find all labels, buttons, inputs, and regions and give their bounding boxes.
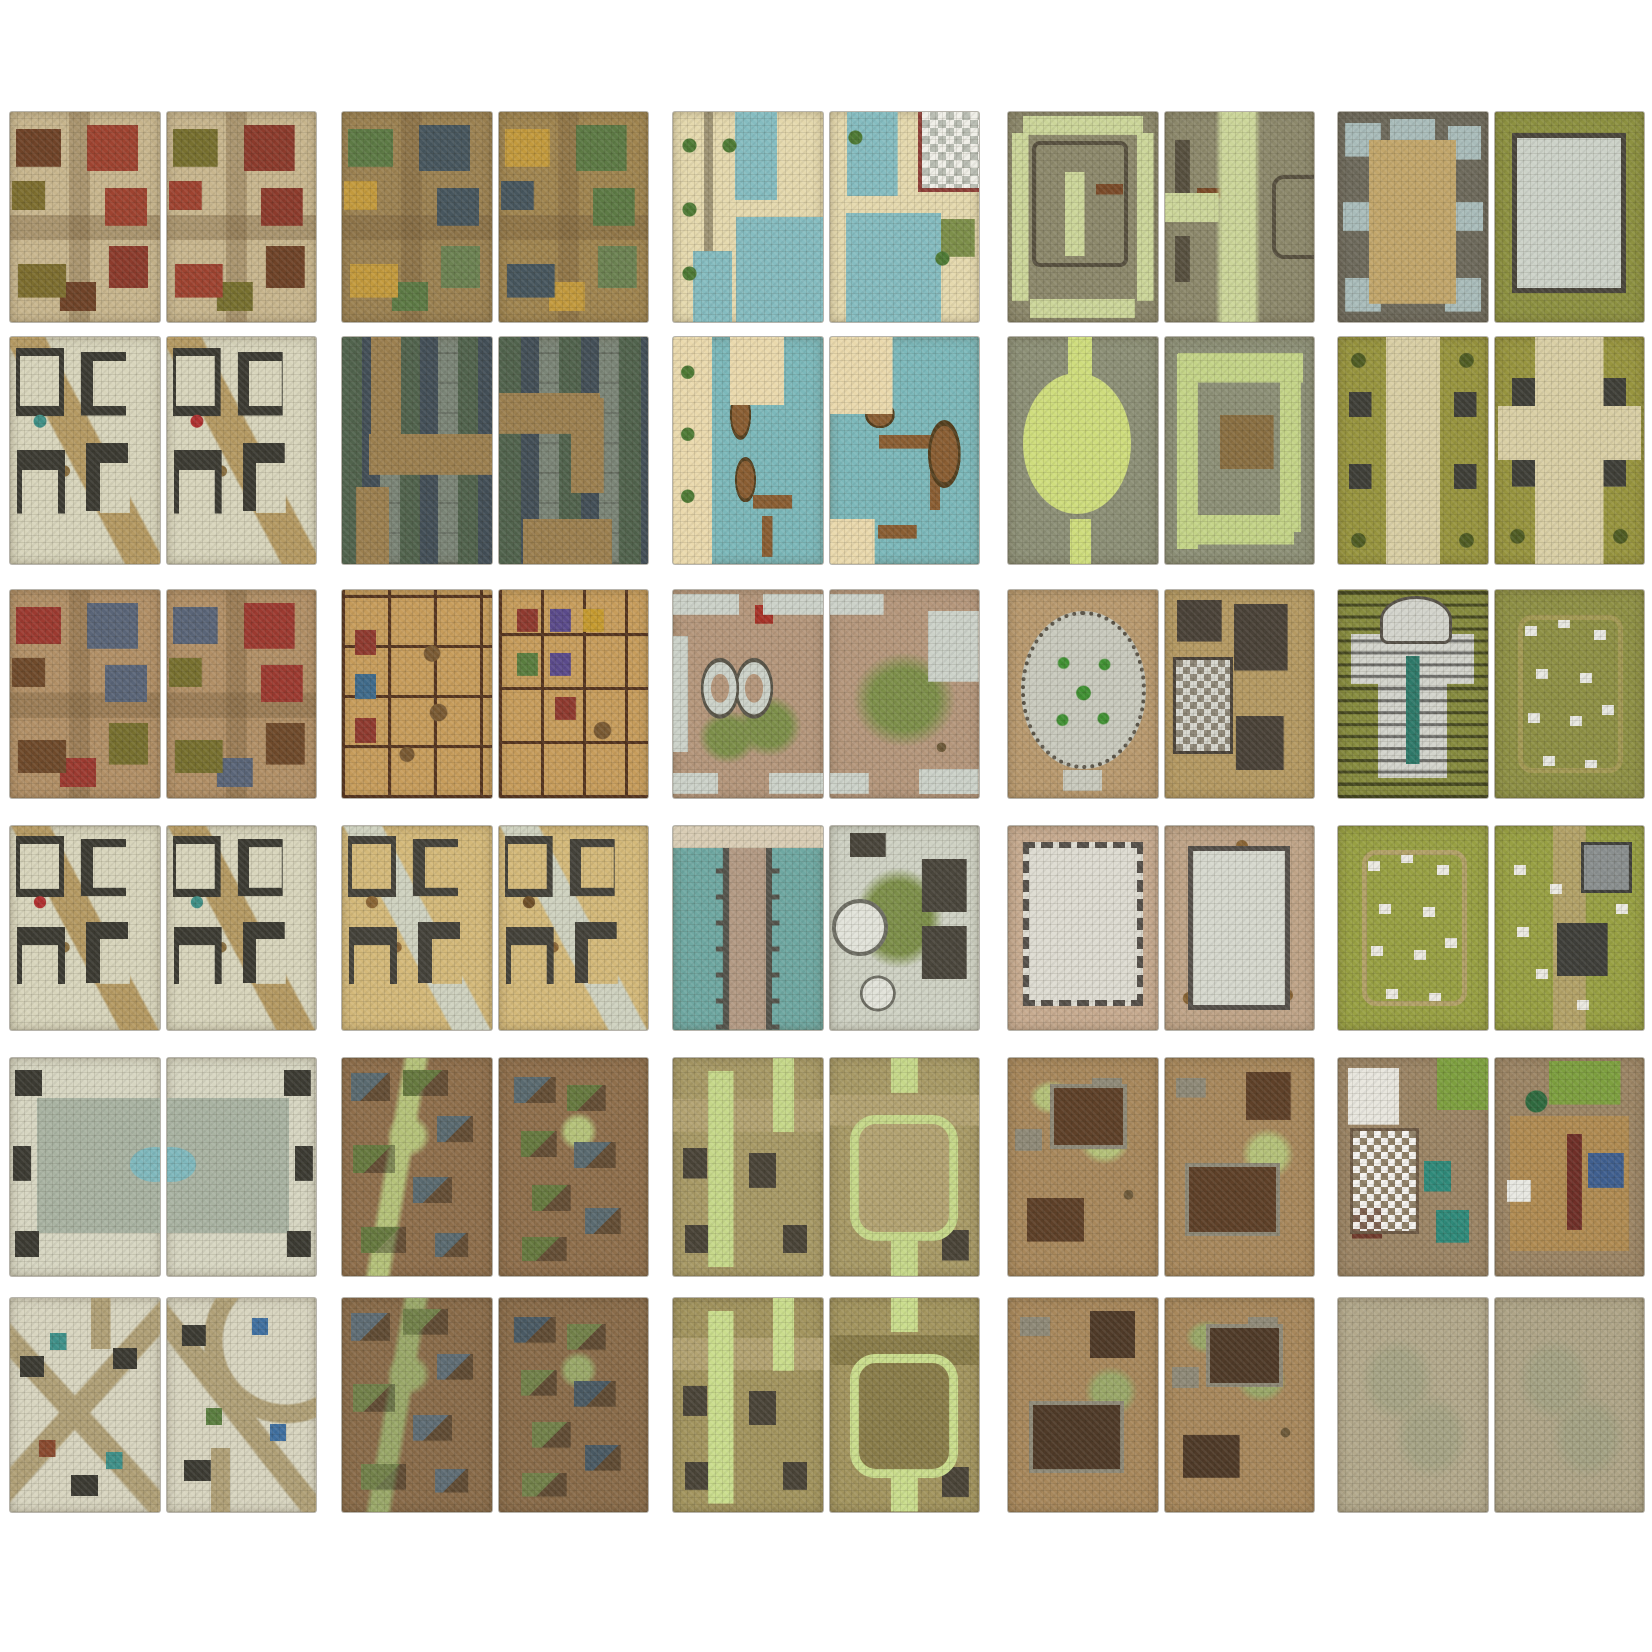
map-tile-r1c2 xyxy=(342,112,648,322)
map-tile-r5c4 xyxy=(1008,1058,1314,1276)
map-art xyxy=(1165,337,1315,564)
map-art xyxy=(1338,112,1488,322)
tile-grid xyxy=(0,0,1652,1652)
map-tile-r5c1 xyxy=(10,1058,316,1276)
map-panel-r6c4-a xyxy=(1008,1298,1158,1512)
map-panel-r3c5-a xyxy=(1338,590,1488,798)
map-panel-r6c5-a xyxy=(1338,1298,1488,1512)
map-art xyxy=(167,1298,317,1512)
map-panel-r4c2-a xyxy=(342,826,492,1030)
map-tile-r3c4 xyxy=(1008,590,1314,798)
map-panel-r1c1-b xyxy=(167,112,317,322)
map-panel-r3c2-a xyxy=(342,590,492,798)
map-panel-r6c4-b xyxy=(1165,1298,1315,1512)
map-deco xyxy=(918,112,979,192)
map-art xyxy=(499,1058,649,1276)
map-art xyxy=(499,826,649,1030)
map-art xyxy=(499,337,649,564)
map-deco xyxy=(1185,1163,1280,1236)
map-art xyxy=(342,590,492,798)
map-tile-r2c1 xyxy=(10,337,316,564)
map-panel-r2c2-a xyxy=(342,337,492,564)
map-panel-r5c4-b xyxy=(1165,1058,1315,1276)
map-panel-r4c4-a xyxy=(1008,826,1158,1030)
map-panel-r6c5-b xyxy=(1495,1298,1645,1512)
map-deco xyxy=(1023,842,1143,1005)
map-panel-r3c4-a xyxy=(1008,590,1158,798)
map-panel-r5c2-b xyxy=(499,1058,649,1276)
map-deco xyxy=(1206,1324,1283,1388)
map-art xyxy=(499,112,649,322)
map-tile-r4c1 xyxy=(10,826,316,1030)
map-art xyxy=(1495,1058,1645,1276)
map-art xyxy=(167,590,317,798)
map-art xyxy=(342,1058,492,1276)
map-panel-r5c1-b xyxy=(167,1058,317,1276)
map-panel-r1c3-b xyxy=(830,112,980,322)
map-panel-r3c4-b xyxy=(1165,590,1315,798)
map-tile-r3c1 xyxy=(10,590,316,798)
map-tile-r4c5 xyxy=(1338,826,1644,1030)
map-art xyxy=(1338,337,1488,564)
map-art xyxy=(673,337,823,564)
map-tile-r6c1 xyxy=(10,1298,316,1512)
map-art xyxy=(499,1298,649,1512)
map-tile-r3c2 xyxy=(342,590,648,798)
map-panel-r2c3-b xyxy=(830,337,980,564)
map-panel-r5c4-a xyxy=(1008,1058,1158,1276)
map-art xyxy=(10,112,160,322)
map-panel-r4c1-a xyxy=(10,826,160,1030)
map-tile-r3c3 xyxy=(673,590,979,798)
map-art xyxy=(10,1298,160,1512)
map-panel-r6c3-a xyxy=(673,1298,823,1512)
map-tile-r6c4 xyxy=(1008,1298,1314,1512)
map-tile-r4c3 xyxy=(673,826,979,1030)
map-deco xyxy=(1512,133,1626,293)
map-tile-r6c3 xyxy=(673,1298,979,1512)
map-panel-r2c5-a xyxy=(1338,337,1488,564)
map-deco xyxy=(1350,1128,1419,1234)
map-deco xyxy=(1173,657,1233,755)
map-art xyxy=(499,590,649,798)
map-panel-r3c5-b xyxy=(1495,590,1645,798)
map-deco xyxy=(1581,842,1632,893)
map-deco xyxy=(1029,1401,1124,1473)
map-deco xyxy=(1021,611,1146,769)
map-deco xyxy=(1188,846,1290,1009)
map-tile-r1c1 xyxy=(10,112,316,322)
map-deco xyxy=(1362,850,1467,1005)
map-panel-r4c3-b xyxy=(830,826,980,1030)
map-panel-r5c3-b xyxy=(830,1058,980,1276)
map-deco xyxy=(1380,596,1452,644)
map-panel-r4c2-b xyxy=(499,826,649,1030)
map-tile-r1c3 xyxy=(673,112,979,322)
map-tile-r2c2 xyxy=(342,337,648,564)
map-panel-r4c5-b xyxy=(1495,826,1645,1030)
map-tile-r1c5 xyxy=(1338,112,1644,322)
map-art xyxy=(673,590,823,798)
map-panel-r4c5-a xyxy=(1338,826,1488,1030)
map-panel-r5c5-b xyxy=(1495,1058,1645,1276)
map-art xyxy=(10,590,160,798)
map-panel-r6c1-b xyxy=(167,1298,317,1512)
map-tile-r5c3 xyxy=(673,1058,979,1276)
map-panel-r3c3-a xyxy=(673,590,823,798)
map-art xyxy=(673,826,823,1030)
map-panel-r2c4-a xyxy=(1008,337,1158,564)
map-panel-r3c1-a xyxy=(10,590,160,798)
map-tile-r3c5 xyxy=(1338,590,1644,798)
map-art xyxy=(673,1058,823,1276)
map-panel-r1c4-a xyxy=(1008,112,1158,322)
map-panel-r5c5-a xyxy=(1338,1058,1488,1276)
map-art xyxy=(342,826,492,1030)
map-panel-r3c2-b xyxy=(499,590,649,798)
map-deco xyxy=(850,1115,958,1241)
map-art xyxy=(167,826,317,1030)
map-panel-r2c3-a xyxy=(673,337,823,564)
map-art xyxy=(167,337,317,564)
map-deco xyxy=(1518,615,1623,773)
map-panel-r2c1-b xyxy=(167,337,317,564)
map-art xyxy=(342,1298,492,1512)
map-tile-r2c4 xyxy=(1008,337,1314,564)
map-panel-r4c1-b xyxy=(167,826,317,1030)
map-art xyxy=(1495,337,1645,564)
map-art xyxy=(342,337,492,564)
map-panel-r2c5-b xyxy=(1495,337,1645,564)
map-panel-r5c1-a xyxy=(10,1058,160,1276)
map-panel-r1c1-a xyxy=(10,112,160,322)
map-panel-r6c3-b xyxy=(830,1298,980,1512)
map-panel-r1c5-a xyxy=(1338,112,1488,322)
map-panel-r2c2-b xyxy=(499,337,649,564)
map-art xyxy=(167,112,317,322)
map-deco xyxy=(1050,1084,1127,1149)
map-panel-r1c3-a xyxy=(673,112,823,322)
map-tile-r2c5 xyxy=(1338,337,1644,564)
map-deco xyxy=(850,1354,958,1478)
map-tile-r6c2 xyxy=(342,1298,648,1512)
map-tile-r1c4 xyxy=(1008,112,1314,322)
map-art xyxy=(1338,1298,1488,1512)
map-art xyxy=(10,826,160,1030)
map-tile-r4c4 xyxy=(1008,826,1314,1030)
map-art xyxy=(673,112,823,322)
map-panel-r5c3-a xyxy=(673,1058,823,1276)
map-tile-r4c2 xyxy=(342,826,648,1030)
map-panel-r2c1-a xyxy=(10,337,160,564)
map-art xyxy=(830,590,980,798)
map-art xyxy=(673,1298,823,1512)
map-tile-r5c5 xyxy=(1338,1058,1644,1276)
map-tile-r5c2 xyxy=(342,1058,648,1276)
map-panel-r1c4-b xyxy=(1165,112,1315,322)
map-panel-r5c2-a xyxy=(342,1058,492,1276)
map-panel-r6c1-a xyxy=(10,1298,160,1512)
map-panel-r2c4-b xyxy=(1165,337,1315,564)
map-tile-r6c5 xyxy=(1338,1298,1644,1512)
map-panel-r3c1-b xyxy=(167,590,317,798)
map-panel-r4c3-a xyxy=(673,826,823,1030)
map-art xyxy=(10,337,160,564)
map-panel-r6c2-a xyxy=(342,1298,492,1512)
map-panel-r6c2-b xyxy=(499,1298,649,1512)
map-panel-r3c3-b xyxy=(830,590,980,798)
map-deco xyxy=(1272,175,1314,259)
map-art xyxy=(1495,1298,1645,1512)
map-panel-r4c4-b xyxy=(1165,826,1315,1030)
map-panel-r1c5-b xyxy=(1495,112,1645,322)
map-deco xyxy=(1032,141,1128,267)
map-panel-r1c2-b xyxy=(499,112,649,322)
map-deco xyxy=(1023,373,1131,514)
map-tile-r2c3 xyxy=(673,337,979,564)
map-panel-r1c2-a xyxy=(342,112,492,322)
map-art xyxy=(342,112,492,322)
map-art xyxy=(830,337,980,564)
